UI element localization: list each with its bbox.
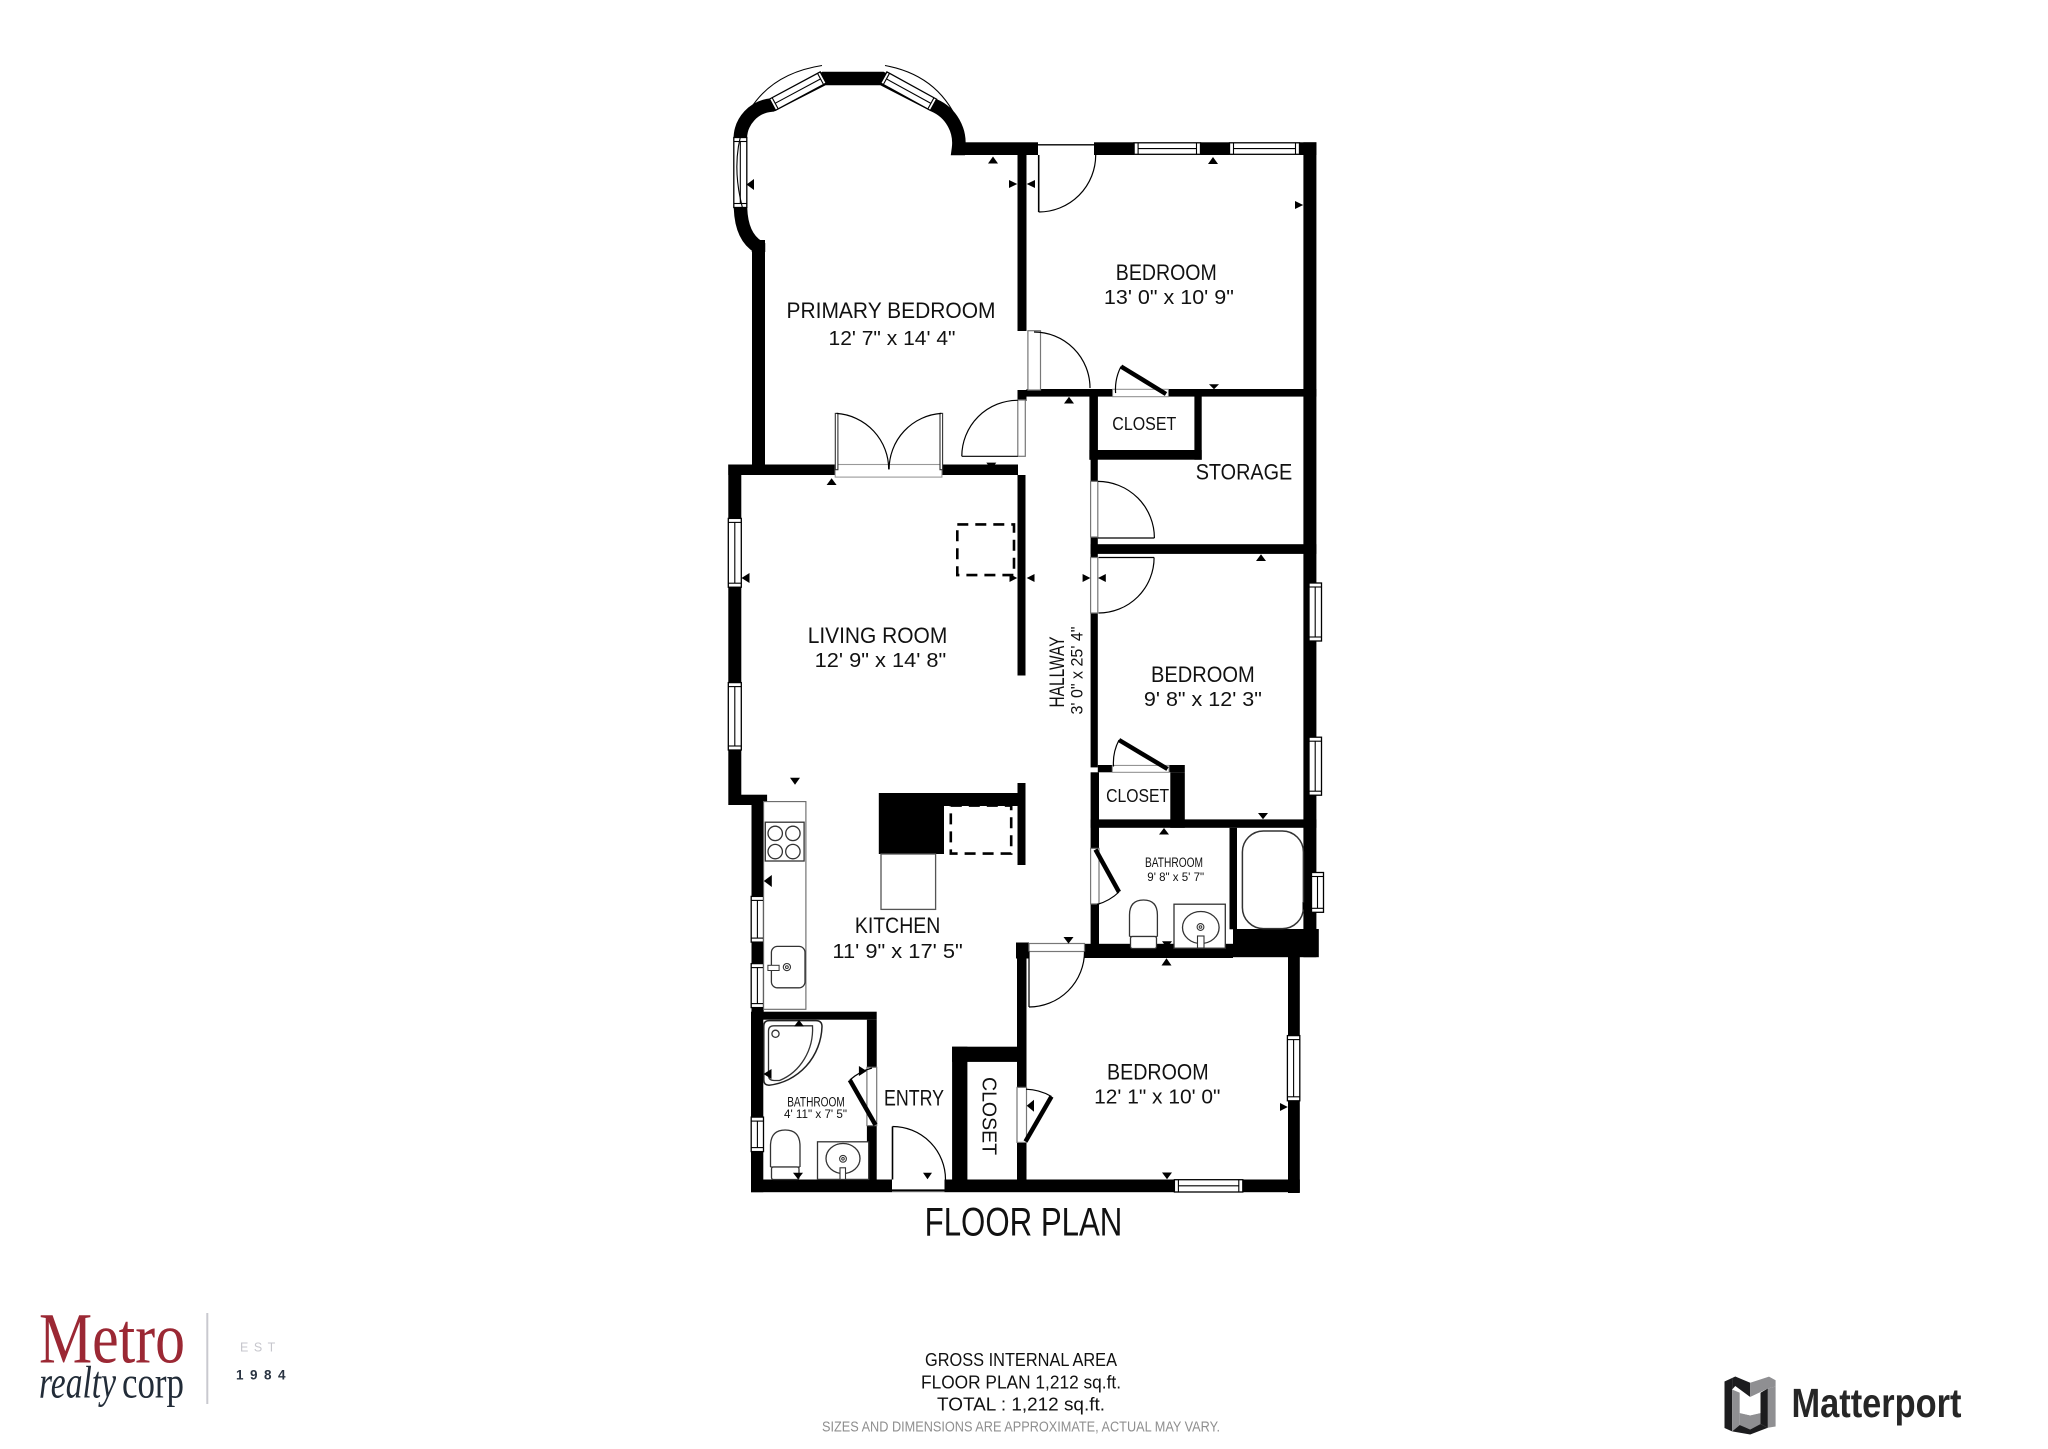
svg-text:12' 7" x 14' 4": 12' 7" x 14' 4" xyxy=(829,327,956,350)
svg-text:BEDROOM: BEDROOM xyxy=(1116,260,1217,285)
svg-text:CLOSET: CLOSET xyxy=(1106,786,1169,806)
svg-text:12' 9" x 14' 8": 12' 9" x 14' 8" xyxy=(815,649,947,672)
svg-text:STORAGE: STORAGE xyxy=(1196,460,1293,485)
svg-text:BEDROOM: BEDROOM xyxy=(1151,662,1255,687)
svg-text:LIVING ROOM: LIVING ROOM xyxy=(808,623,948,648)
svg-text:realty: realty xyxy=(39,1358,116,1408)
svg-text:12' 1" x 10' 0": 12' 1" x 10' 0" xyxy=(1094,1086,1220,1109)
svg-text:FLOOR PLAN 1,212 sq.ft.: FLOOR PLAN 1,212 sq.ft. xyxy=(921,1372,1121,1393)
svg-text:HALLWAY: HALLWAY xyxy=(1046,637,1069,708)
svg-text:3' 0" x 25' 4": 3' 0" x 25' 4" xyxy=(1069,626,1087,714)
svg-text:BATHROOM: BATHROOM xyxy=(1145,855,1203,870)
svg-text:SIZES AND DIMENSIONS ARE APPRO: SIZES AND DIMENSIONS ARE APPROXIMATE, AC… xyxy=(822,1420,1220,1436)
svg-text:BEDROOM: BEDROOM xyxy=(1107,1060,1209,1085)
svg-text:4' 11" x 7' 5": 4' 11" x 7' 5" xyxy=(784,1107,847,1121)
svg-text:Matterport: Matterport xyxy=(1792,1380,1962,1426)
svg-text:9' 8" x 12' 3": 9' 8" x 12' 3" xyxy=(1144,688,1262,711)
svg-text:KITCHEN: KITCHEN xyxy=(855,913,941,938)
svg-text:PRIMARY BEDROOM: PRIMARY BEDROOM xyxy=(787,298,996,323)
svg-text:CLOSET: CLOSET xyxy=(1112,414,1176,434)
svg-text:9' 8" x 5' 7": 9' 8" x 5' 7" xyxy=(1147,870,1204,884)
svg-text:FLOOR PLAN: FLOOR PLAN xyxy=(925,1200,1123,1244)
svg-text:1984: 1984 xyxy=(236,1368,292,1383)
svg-text:CLOSET: CLOSET xyxy=(978,1077,1000,1155)
svg-text:corp: corp xyxy=(122,1359,184,1408)
svg-text:GROSS INTERNAL AREA: GROSS INTERNAL AREA xyxy=(925,1349,1118,1370)
svg-text:ENTRY: ENTRY xyxy=(884,1086,944,1111)
svg-text:TOTAL : 1,212 sq.ft.: TOTAL : 1,212 sq.ft. xyxy=(937,1394,1105,1415)
svg-text:EST: EST xyxy=(240,1341,281,1355)
svg-text:13' 0" x 10' 9": 13' 0" x 10' 9" xyxy=(1104,286,1234,309)
svg-text:11' 9" x 17' 5": 11' 9" x 17' 5" xyxy=(832,940,962,963)
